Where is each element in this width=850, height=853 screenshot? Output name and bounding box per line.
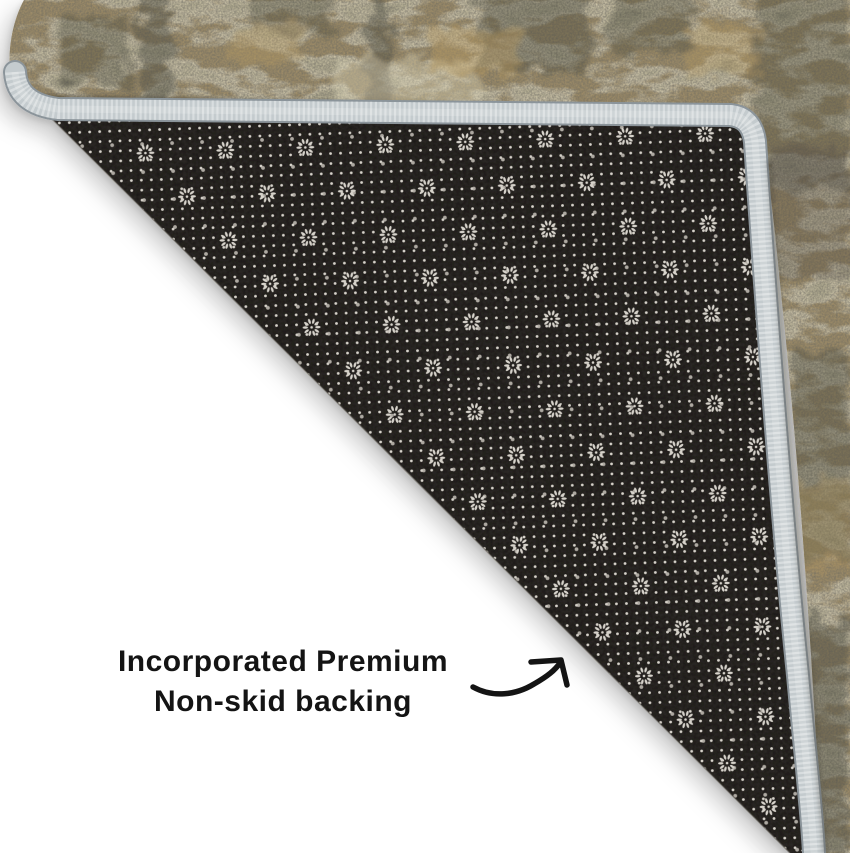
product-image: Incorporated Premium Non-skid backing [0,0,850,853]
rug-photo-canvas: Incorporated Premium Non-skid backing [0,0,850,853]
caption-line-1: Incorporated Premium [118,645,448,678]
caption-line-2: Non-skid backing [154,685,412,718]
